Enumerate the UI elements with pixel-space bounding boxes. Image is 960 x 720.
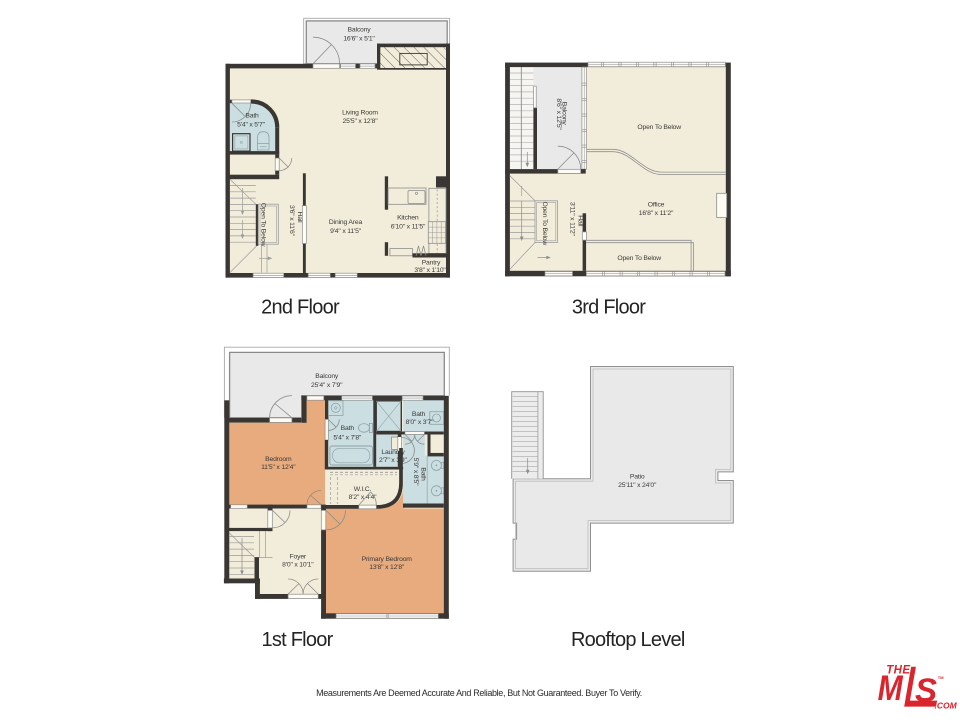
svg-text:Dining Area: Dining Area xyxy=(329,219,363,226)
svg-text:8'0" x 10'1": 8'0" x 10'1" xyxy=(282,561,314,568)
svg-text:5'9" x 8'5": 5'9" x 8'5" xyxy=(412,458,419,487)
svg-text:8'6" x 12'5": 8'6" x 12'5" xyxy=(555,98,562,130)
svg-text:3rd Floor: 3rd Floor xyxy=(572,297,646,319)
svg-text:.COM: .COM xyxy=(935,700,958,710)
svg-text:Bath: Bath xyxy=(412,411,426,418)
svg-text:Foyer: Foyer xyxy=(290,554,307,561)
svg-text:Bath: Bath xyxy=(420,467,427,481)
svg-text:Office: Office xyxy=(648,201,665,208)
svg-text:1st Floor: 1st Floor xyxy=(261,629,333,651)
svg-text:25'5" x 12'8": 25'5" x 12'8" xyxy=(343,118,379,125)
svg-text:Balcony: Balcony xyxy=(348,27,372,34)
svg-text:Hall: Hall xyxy=(576,215,583,227)
svg-text:2'7" x 3'9": 2'7" x 3'9" xyxy=(379,457,408,464)
svg-text:11'5" x 12'4": 11'5" x 12'4" xyxy=(261,464,296,471)
svg-text:Kitchen: Kitchen xyxy=(397,215,419,222)
svg-text:8'0" x 3'7": 8'0" x 3'7" xyxy=(406,419,435,426)
svg-text:Primary Bedroom: Primary Bedroom xyxy=(362,556,413,563)
svg-text:Measurements Are Deemed Accura: Measurements Are Deemed Accurate And Rel… xyxy=(316,688,642,698)
svg-text:3'11" x 11'2": 3'11" x 11'2" xyxy=(568,202,575,237)
svg-text:Patio: Patio xyxy=(630,473,645,480)
svg-text:Open To Below: Open To Below xyxy=(637,124,681,131)
svg-text:16'6" x 5'1": 16'6" x 5'1" xyxy=(343,36,375,43)
svg-text:Open To Below: Open To Below xyxy=(617,255,661,262)
svg-text:5'4" x 5'7": 5'4" x 5'7" xyxy=(237,121,266,128)
svg-text:Rooftop Level: Rooftop Level xyxy=(571,629,685,651)
svg-text:16'8" x 11'2": 16'8" x 11'2" xyxy=(639,210,674,217)
svg-text:Open To Below: Open To Below xyxy=(541,201,548,245)
svg-text:2nd Floor: 2nd Floor xyxy=(261,297,340,319)
svg-text:5'4" x 7'8": 5'4" x 7'8" xyxy=(333,434,362,441)
svg-text:Bath: Bath xyxy=(245,113,259,120)
svg-text:W.I.C.: W.I.C. xyxy=(354,486,372,493)
svg-text:M: M xyxy=(878,668,904,708)
svg-text:6'10" x 11'5": 6'10" x 11'5" xyxy=(391,224,426,231)
svg-text:Bath: Bath xyxy=(341,425,355,432)
svg-text:25'11" x 24'0": 25'11" x 24'0" xyxy=(618,482,657,489)
svg-text:13'8" x 12'8": 13'8" x 12'8" xyxy=(369,564,405,571)
svg-text:3'6" x 11'6": 3'6" x 11'6" xyxy=(288,205,295,237)
svg-text:3'8" x 1'10": 3'8" x 1'10" xyxy=(414,267,446,274)
svg-text:25'4" x 7'9": 25'4" x 7'9" xyxy=(311,382,343,389)
svg-text:Living Room: Living Room xyxy=(342,110,378,117)
svg-text:Bedroom: Bedroom xyxy=(265,456,292,463)
svg-text:Pantry: Pantry xyxy=(422,259,441,266)
svg-text:Balcony: Balcony xyxy=(315,373,339,380)
svg-text:9'4" x 11'5": 9'4" x 11'5" xyxy=(330,228,362,235)
svg-text:TM: TM xyxy=(938,675,944,680)
svg-text:Open To Below: Open To Below xyxy=(260,203,267,247)
